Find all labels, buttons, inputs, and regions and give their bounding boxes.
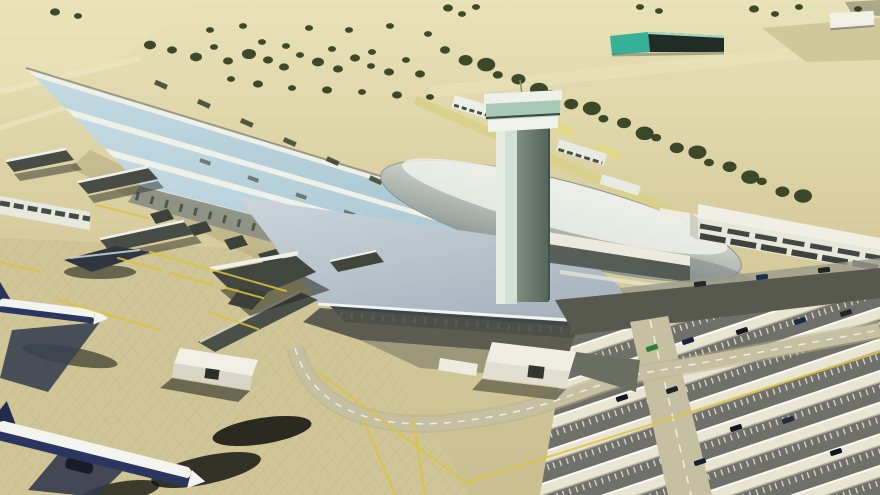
loading-door xyxy=(527,365,544,379)
tower-shaft-dark xyxy=(517,124,549,302)
tower-shaft-glass xyxy=(505,126,517,304)
screenshot-canvas xyxy=(0,0,880,495)
airport-rendering xyxy=(0,0,880,495)
distant-hangar xyxy=(830,11,875,29)
teal-warehouse xyxy=(610,32,724,55)
warehouse-shadow xyxy=(612,53,724,55)
tower-shaft-light xyxy=(496,126,505,304)
door xyxy=(204,368,219,380)
tower-cab xyxy=(484,90,562,132)
